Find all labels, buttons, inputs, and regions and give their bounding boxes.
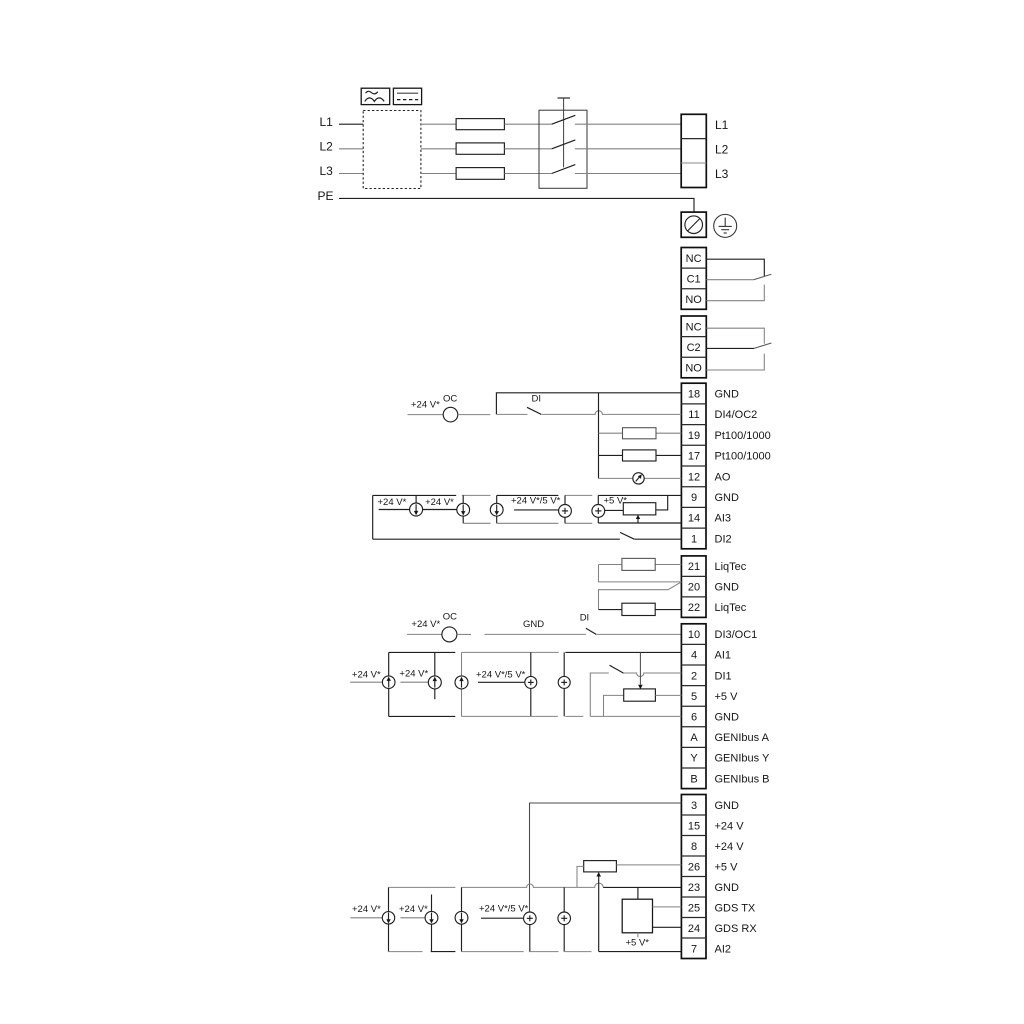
svg-text:7: 7 [691,943,697,955]
svg-text:PE: PE [318,189,334,203]
svg-text:LiqTec: LiqTec [715,602,747,614]
svg-text:+24 V*: +24 V* [411,400,440,411]
svg-text:2: 2 [691,670,697,682]
svg-text:9: 9 [691,492,697,504]
svg-text:+5 V: +5 V [715,691,739,703]
svg-text:DI2: DI2 [715,533,732,545]
svg-text:LiqTec: LiqTec [715,561,747,573]
svg-text:DI3/OC1: DI3/OC1 [715,629,758,641]
svg-text:+24 V: +24 V [715,820,745,832]
svg-text:GND: GND [715,492,740,504]
svg-text:GND: GND [715,582,740,594]
svg-text:L2: L2 [320,139,334,153]
svg-text:L2: L2 [715,142,729,156]
svg-text:+5 V*: +5 V* [626,937,650,948]
svg-text:OC: OC [443,611,457,622]
svg-text:+24 V*/5 V*: +24 V*/5 V* [511,495,561,506]
svg-text:DI4/OC2: DI4/OC2 [715,409,758,421]
svg-text:NC: NC [686,321,702,333]
svg-text:GND: GND [715,712,740,724]
svg-text:AI3: AI3 [715,513,732,525]
svg-text:Pt100/1000: Pt100/1000 [715,451,771,463]
svg-text:12: 12 [688,471,700,483]
svg-text:+24 V: +24 V [715,841,745,853]
svg-text:3: 3 [691,800,697,812]
svg-text:5: 5 [691,691,697,703]
svg-text:4: 4 [691,650,697,662]
svg-text:+24 V*: +24 V* [425,497,454,508]
svg-text:AI1: AI1 [715,650,732,662]
svg-text:+24 V*: +24 V* [352,670,381,681]
svg-text:15: 15 [688,820,700,832]
svg-text:Pt100/1000: Pt100/1000 [715,430,771,442]
svg-text:DI: DI [580,613,590,624]
svg-text:L3: L3 [320,164,334,178]
svg-text:OC: OC [443,394,457,405]
svg-text:21: 21 [688,561,700,573]
svg-text:L3: L3 [715,167,729,181]
svg-text:L1: L1 [320,115,334,129]
svg-text:6: 6 [691,712,697,724]
svg-text:C1: C1 [687,273,701,285]
svg-text:NC: NC [686,253,702,265]
svg-text:AO: AO [715,471,731,483]
svg-text:+24 V*: +24 V* [411,619,440,630]
svg-text:GENIbus B: GENIbus B [715,773,770,785]
svg-text:+24 V*/5 V*: +24 V*/5 V* [476,670,526,681]
svg-text:GND: GND [715,800,740,812]
svg-text:26: 26 [688,861,700,873]
svg-text:GDS RX: GDS RX [715,923,758,935]
svg-text:GND: GND [715,882,740,894]
svg-text:+24 V*: +24 V* [399,904,428,915]
svg-text:+24 V*: +24 V* [378,497,407,508]
svg-text:20: 20 [688,582,700,594]
svg-text:17: 17 [688,451,700,463]
svg-text:10: 10 [688,629,700,641]
svg-text:18: 18 [688,389,700,401]
svg-text:GENIbus A: GENIbus A [715,732,770,744]
svg-text:L1: L1 [715,118,729,132]
svg-text:Y: Y [690,753,698,765]
svg-text:DI: DI [532,394,542,405]
svg-text:GDS TX: GDS TX [715,902,756,914]
svg-text:19: 19 [688,430,700,442]
svg-text:24: 24 [688,923,700,935]
svg-text:+24 V*: +24 V* [399,668,428,679]
svg-text:GND: GND [715,389,740,401]
svg-text:NO: NO [685,294,702,306]
svg-text:14: 14 [688,513,700,525]
svg-text:11: 11 [688,409,699,421]
svg-text:1: 1 [691,533,697,545]
svg-text:AI2: AI2 [715,943,732,955]
svg-text:22: 22 [688,602,700,614]
svg-text:DI1: DI1 [715,670,732,682]
svg-text:A: A [690,732,698,744]
svg-text:8: 8 [691,841,697,853]
svg-text:+24 V*: +24 V* [352,904,381,915]
svg-text:GND: GND [523,619,544,630]
svg-text:NO: NO [685,363,702,375]
svg-text:25: 25 [688,902,700,914]
svg-text:+24 V*/5 V*: +24 V*/5 V* [479,903,529,914]
svg-text:GENIbus Y: GENIbus Y [715,753,770,765]
svg-text:+5 V: +5 V [715,861,739,873]
svg-text:C2: C2 [687,342,701,354]
svg-text:23: 23 [688,882,700,894]
svg-text:B: B [690,773,697,785]
